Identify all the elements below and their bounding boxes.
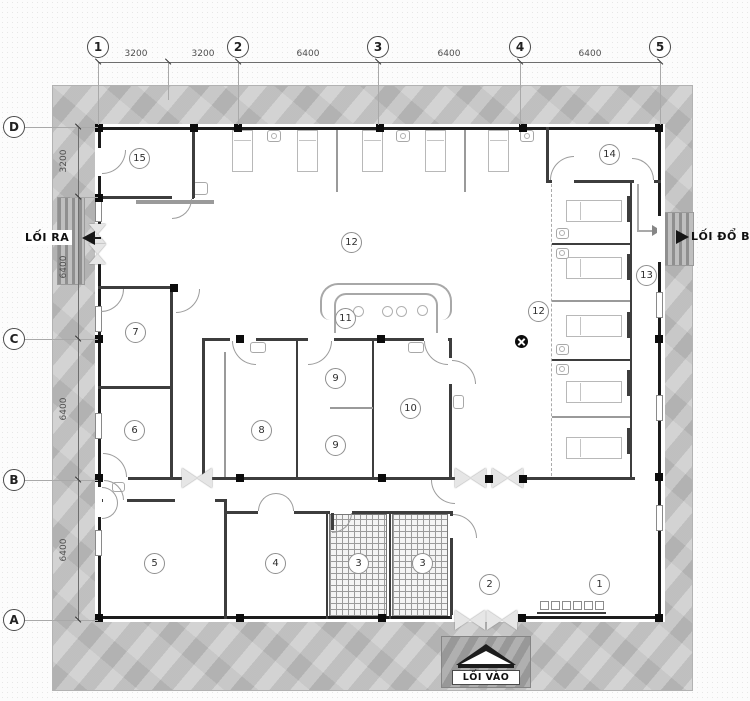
column	[170, 284, 178, 292]
sink-dot	[559, 346, 565, 352]
room-3-label: 3	[348, 553, 369, 574]
sink	[453, 395, 464, 409]
wall-interior	[449, 338, 452, 358]
bed-line	[580, 317, 581, 335]
door-leaf	[487, 610, 502, 630]
bed-line	[580, 259, 581, 277]
wall-interior	[449, 384, 452, 480]
window	[95, 530, 102, 556]
bed	[566, 437, 622, 459]
double-door	[89, 244, 106, 264]
exit-left-arrow-tail	[93, 237, 101, 239]
column	[519, 124, 527, 132]
sink	[408, 342, 424, 353]
bed-line	[299, 140, 316, 141]
privacy-screen	[464, 128, 466, 192]
grid-line	[238, 62, 239, 125]
column	[95, 194, 103, 202]
wall-interior	[546, 127, 549, 182]
dimension-line	[78, 127, 79, 620]
bench-rail	[537, 612, 606, 614]
double-door	[182, 468, 212, 488]
window	[656, 505, 663, 531]
room-1-label: 1	[589, 574, 610, 595]
room-14-label: 14	[599, 144, 620, 165]
column	[655, 473, 663, 481]
floor-plan-canvas: LỐI RA LỐI ĐỔ BẨN LỐI VÀO 12345320032006…	[0, 0, 750, 701]
sink	[193, 182, 208, 195]
dimension-text: 3200	[191, 49, 215, 59]
bed	[566, 315, 622, 337]
column	[377, 335, 385, 343]
bed	[566, 381, 622, 403]
grid-line	[378, 62, 379, 125]
double-door	[487, 610, 517, 630]
bed	[566, 257, 622, 279]
bed	[362, 130, 383, 172]
grid-bubble-4: 4	[509, 36, 531, 58]
wall-interior	[552, 243, 632, 245]
waiting-chair	[540, 601, 549, 610]
waiting-chair	[573, 601, 582, 610]
column	[519, 475, 527, 483]
sink-dot	[524, 133, 530, 139]
wall-interior	[98, 386, 173, 389]
stool	[417, 305, 428, 316]
bed	[566, 200, 622, 222]
grid-line	[25, 127, 98, 128]
room-9-label: 9	[325, 435, 346, 456]
dimension-text: 6400	[296, 49, 320, 59]
double-door	[455, 610, 485, 630]
column	[234, 124, 242, 132]
column	[190, 124, 198, 132]
grid-bubble-3: 3	[367, 36, 389, 58]
room-9-label: 9	[325, 368, 346, 389]
room-6-label: 6	[124, 420, 145, 441]
wall-interior	[128, 477, 182, 480]
wall-interior	[552, 359, 632, 361]
room-13-label: 13	[636, 265, 657, 286]
bed-line	[580, 202, 581, 220]
room-8-label: 8	[251, 420, 272, 441]
grid-line	[25, 620, 98, 621]
door-leaf	[89, 224, 106, 234]
column	[655, 124, 663, 132]
room-7-label: 7	[125, 322, 146, 343]
grid-bubble-C: C	[3, 328, 25, 350]
stool	[382, 306, 393, 317]
column	[236, 335, 244, 343]
sliding-door-leaf	[627, 370, 632, 396]
wall-interior	[192, 127, 195, 198]
privacy-screen	[336, 128, 338, 192]
bed-line	[234, 140, 251, 141]
waiting-chair	[584, 601, 593, 610]
wall-interior	[224, 352, 226, 478]
sink-dot	[400, 133, 406, 139]
grid-line	[520, 62, 521, 125]
double-door	[455, 468, 486, 488]
door-leaf	[182, 468, 197, 488]
door-opening	[657, 216, 662, 262]
column	[376, 124, 384, 132]
wall-interior	[523, 477, 635, 480]
sliding-door-leaf	[627, 254, 632, 280]
grid-line	[25, 339, 98, 340]
wall-interior	[170, 286, 173, 480]
drain-marker	[515, 335, 528, 348]
bed	[232, 130, 253, 172]
wall-interior	[450, 538, 453, 618]
grid-bubble-B: B	[3, 469, 25, 491]
dimension-text: 6400	[578, 49, 602, 59]
window	[656, 292, 663, 318]
wall-interior	[330, 407, 373, 409]
wall-interior	[296, 338, 298, 478]
column	[518, 614, 526, 622]
room-12-label: 12	[528, 301, 549, 322]
waiting-chair	[551, 601, 560, 610]
grid-line	[660, 62, 661, 125]
entrance-stamp-bar	[458, 665, 514, 668]
sink-dot	[271, 133, 277, 139]
wall-interior	[546, 180, 552, 183]
wall-interior	[224, 499, 227, 619]
sliding-door-leaf	[627, 196, 632, 222]
sink-dot	[559, 250, 565, 256]
window	[656, 395, 663, 421]
door-leaf	[89, 254, 106, 264]
entrance-label: LỐI VÀO	[452, 670, 520, 685]
exit-right-label: LỐI ĐỔ BẨN	[691, 230, 750, 243]
column	[378, 614, 386, 622]
door-leaf	[502, 610, 517, 630]
room-5-label: 5	[144, 553, 165, 574]
waiting-chair	[562, 601, 571, 610]
bed-line	[580, 439, 581, 457]
door-leaf	[471, 468, 487, 488]
door-leaf	[331, 513, 334, 530]
grid-line	[25, 480, 98, 481]
door-leaf	[492, 468, 508, 488]
wall-interior	[212, 477, 455, 480]
grid-bubble-A: A	[3, 609, 25, 631]
bed-line	[490, 140, 507, 141]
wall-interior	[552, 300, 632, 302]
grid-line	[98, 62, 99, 125]
wall-interior	[227, 511, 258, 514]
bed	[425, 130, 446, 172]
grid-line	[70, 197, 98, 198]
wall-interior	[202, 338, 205, 480]
wall-interior	[294, 511, 330, 514]
dimension-text: 6400	[59, 397, 69, 421]
wall-interior	[127, 499, 175, 502]
wall-interior	[389, 511, 391, 619]
waiting-chair	[595, 601, 604, 610]
column	[236, 474, 244, 482]
dimension-text: 3200	[124, 49, 148, 59]
column	[485, 475, 493, 483]
path-line	[637, 230, 654, 232]
sink-dot	[559, 366, 565, 372]
room-12-label: 12	[341, 232, 362, 253]
wall-interior	[352, 511, 452, 514]
grid-bubble-5: 5	[649, 36, 671, 58]
curtain-screen	[551, 184, 552, 476]
door-leaf	[89, 244, 106, 254]
bed	[297, 130, 318, 172]
bed-line	[580, 383, 581, 401]
wall-interior	[552, 416, 632, 418]
bed	[488, 130, 509, 172]
path-line	[637, 184, 639, 232]
dimension-text: 6400	[59, 538, 69, 562]
grid-bubble-2: 2	[227, 36, 249, 58]
column	[655, 614, 663, 622]
exit-left-label: LỐI RA	[22, 230, 72, 245]
wall-interior	[574, 180, 634, 183]
room-11-label: 11	[335, 308, 356, 329]
room-4-label: 4	[265, 553, 286, 574]
wall-interior	[256, 338, 308, 341]
grid-line	[168, 62, 169, 100]
grid-bubble-D: D	[3, 116, 25, 138]
wall-interior	[326, 511, 328, 619]
sink-dot	[559, 230, 565, 236]
sliding-door-leaf	[627, 312, 632, 338]
dimension-text: 6400	[437, 49, 461, 59]
column	[655, 335, 663, 343]
stool	[396, 306, 407, 317]
door-leaf	[455, 468, 471, 488]
window	[95, 413, 102, 439]
sliding-door-leaf	[627, 428, 632, 454]
room-3-label: 3	[412, 553, 433, 574]
grid-bubble-1: 1	[87, 36, 109, 58]
column	[95, 124, 103, 132]
dimension-text: 6400	[59, 255, 69, 279]
bed-line	[364, 140, 381, 141]
door-leaf	[197, 468, 212, 488]
column	[378, 474, 386, 482]
dimension-text: 3200	[59, 149, 69, 173]
column	[236, 614, 244, 622]
door-leaf	[470, 610, 485, 630]
wall-exterior-right	[658, 127, 661, 619]
wall-interior	[202, 338, 230, 341]
room-10-label: 10	[400, 398, 421, 419]
door-leaf	[455, 610, 470, 630]
bed-line	[427, 140, 444, 141]
room-15-label: 15	[129, 148, 150, 169]
room-2-label: 2	[479, 574, 500, 595]
wall-interior	[654, 180, 661, 183]
